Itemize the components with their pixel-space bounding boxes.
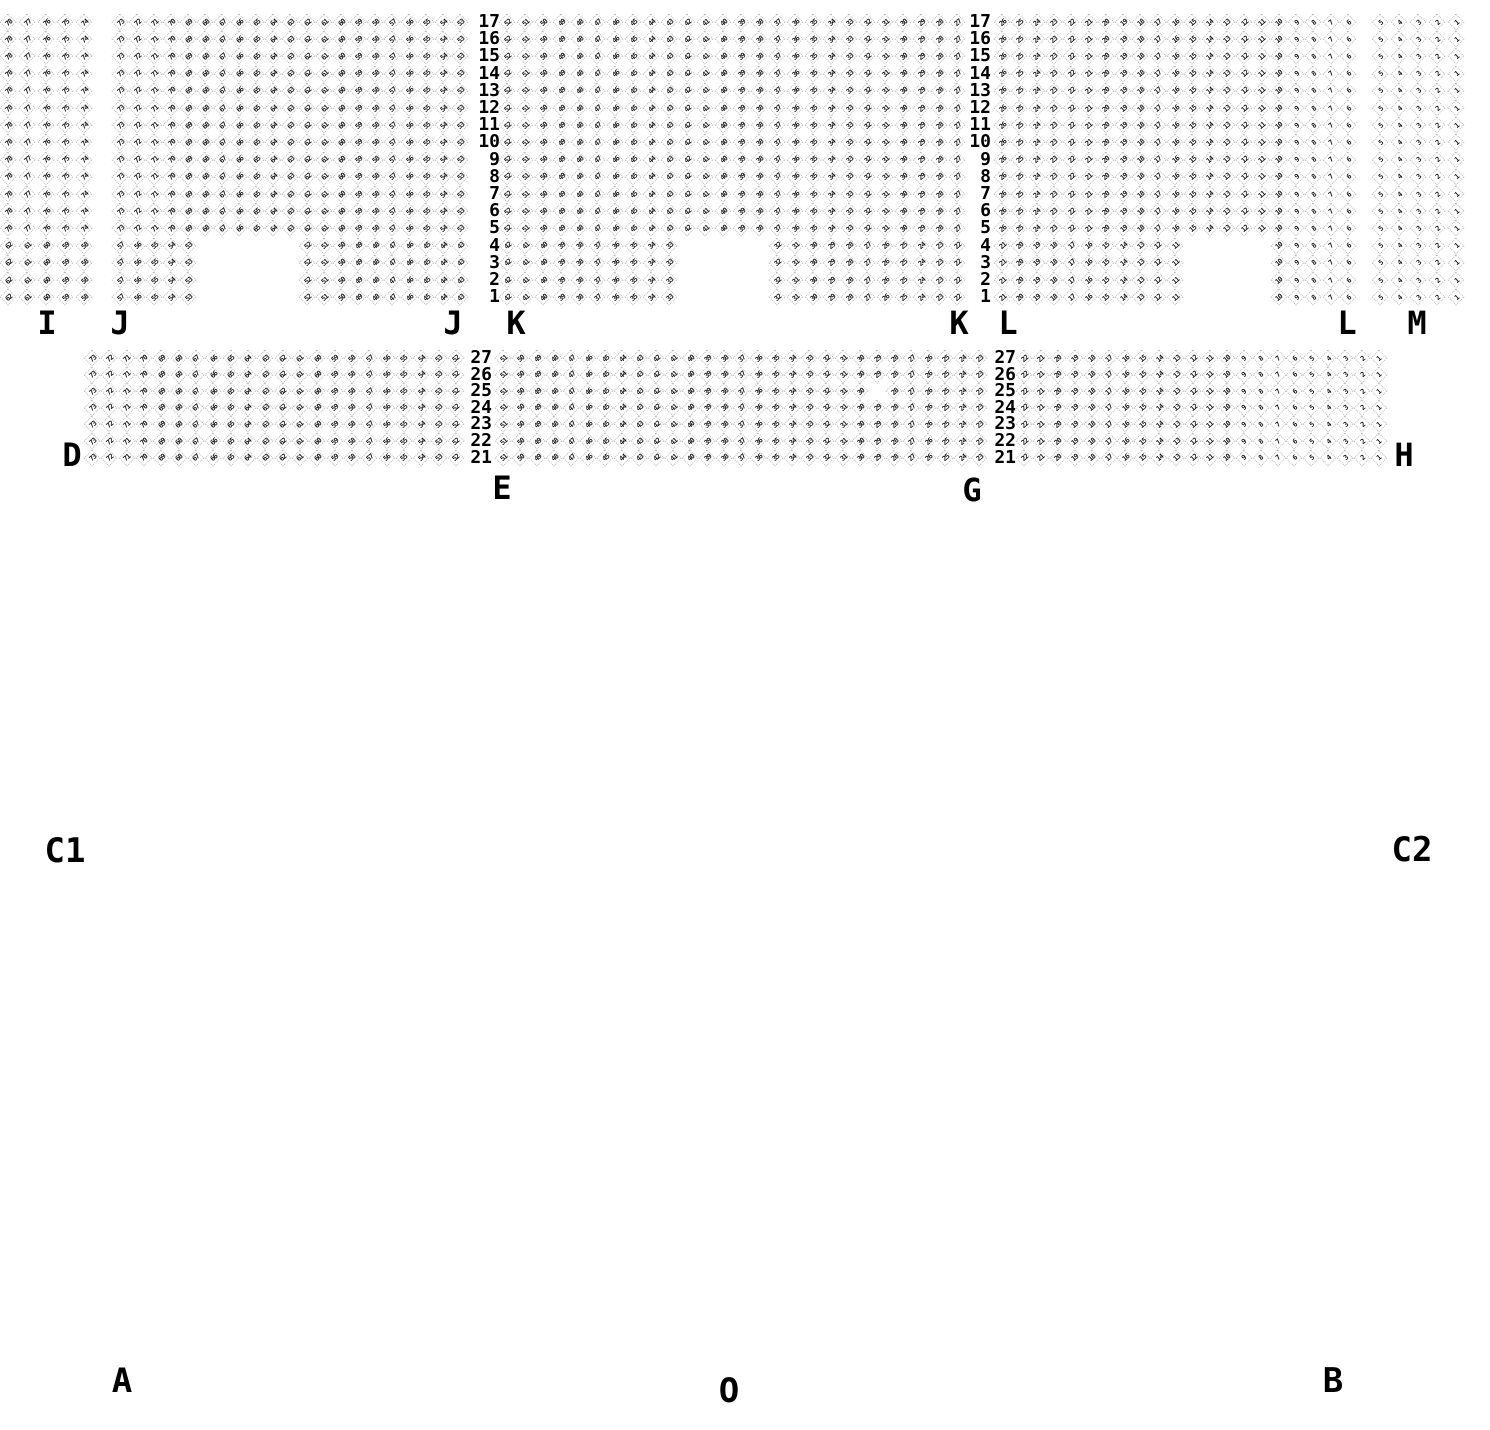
seat[interactable]: 8	[1253, 450, 1268, 465]
seat[interactable]: 36	[751, 351, 766, 366]
seat[interactable]: 6	[1287, 450, 1302, 465]
seat[interactable]: 31	[836, 351, 851, 366]
seat[interactable]: 9	[1289, 83, 1304, 98]
seat[interactable]: 51	[518, 204, 533, 219]
seat[interactable]: 18	[1046, 255, 1061, 270]
seat[interactable]: 41	[666, 417, 681, 432]
seat[interactable]: 9	[1289, 15, 1304, 30]
seat[interactable]: 16	[1118, 417, 1133, 432]
seat[interactable]: 66	[232, 204, 247, 219]
seat[interactable]: 47	[564, 450, 579, 465]
seat[interactable]: 2	[1355, 417, 1370, 432]
seat[interactable]: 61	[20, 273, 35, 288]
seat[interactable]: 15	[1098, 290, 1113, 305]
seat[interactable]: 42	[680, 187, 695, 202]
seat[interactable]: 45	[419, 238, 434, 253]
seat[interactable]: 70	[164, 101, 179, 116]
seat[interactable]: 10	[1219, 450, 1234, 465]
seat[interactable]: 11	[1202, 450, 1217, 465]
seat[interactable]: 48	[572, 101, 587, 116]
seat[interactable]: 36	[608, 255, 623, 270]
seat[interactable]: 78	[1, 169, 16, 184]
seat[interactable]: 13	[1219, 221, 1234, 236]
seat[interactable]: 9	[1289, 273, 1304, 288]
seat[interactable]: 32	[860, 32, 875, 47]
seat[interactable]: 61	[317, 221, 332, 236]
seat[interactable]: 36	[788, 15, 803, 30]
seat[interactable]: 9	[1289, 152, 1304, 167]
seat[interactable]: 67	[215, 49, 230, 64]
seat[interactable]: 44	[644, 15, 659, 30]
seat[interactable]: 72	[130, 152, 145, 167]
seat[interactable]: 6	[1341, 32, 1356, 47]
seat[interactable]: 12	[1186, 450, 1201, 465]
seat[interactable]: 52	[500, 101, 515, 116]
seat[interactable]: 46	[581, 367, 596, 382]
seat[interactable]: 5	[1373, 83, 1388, 98]
seat[interactable]: 18	[1133, 66, 1148, 81]
seat[interactable]: 25	[938, 417, 953, 432]
seat[interactable]: 46	[581, 450, 596, 465]
seat[interactable]: 34	[785, 434, 800, 449]
seat[interactable]: 32	[860, 101, 875, 116]
seat[interactable]: 49	[554, 66, 569, 81]
seat[interactable]: 45	[598, 400, 613, 415]
seat[interactable]: 29	[914, 83, 929, 98]
seat[interactable]: 62	[1, 290, 16, 305]
seat[interactable]: 23	[932, 290, 947, 305]
seat[interactable]: 12	[1237, 101, 1252, 116]
seat[interactable]: 31	[878, 49, 893, 64]
seat[interactable]: 2	[1430, 101, 1445, 116]
seat[interactable]: 32	[860, 15, 875, 30]
seat[interactable]: 43	[632, 434, 647, 449]
seat[interactable]: 42	[680, 221, 695, 236]
seat[interactable]: 76	[39, 83, 54, 98]
seat[interactable]: 72	[130, 118, 145, 133]
seat[interactable]: 46	[608, 221, 623, 236]
seat[interactable]: 3	[1411, 204, 1426, 219]
seat[interactable]: 53	[453, 49, 468, 64]
seat[interactable]: 34	[785, 351, 800, 366]
seat[interactable]: 77	[20, 83, 35, 98]
seat[interactable]: 10	[1271, 290, 1286, 305]
seat[interactable]: 53	[453, 15, 468, 30]
seat[interactable]: 29	[870, 367, 885, 382]
seat[interactable]: 42	[680, 32, 695, 47]
seat[interactable]: 12	[1237, 187, 1252, 202]
seat[interactable]: 72	[130, 66, 145, 81]
seat[interactable]: 31	[836, 450, 851, 465]
seat[interactable]: 52	[300, 273, 315, 288]
seat[interactable]: 27	[904, 351, 919, 366]
seat[interactable]: 72	[130, 32, 145, 47]
seat[interactable]: 18	[1046, 290, 1061, 305]
seat[interactable]: 27	[950, 118, 965, 133]
seat[interactable]: 54	[436, 118, 451, 133]
seat[interactable]: 75	[58, 83, 73, 98]
seat[interactable]: 26	[995, 169, 1010, 184]
seat[interactable]: 24	[1029, 135, 1044, 150]
seat[interactable]: 43	[453, 290, 468, 305]
seat[interactable]: 45	[626, 118, 641, 133]
seat[interactable]: 65	[249, 221, 264, 236]
seat[interactable]: 36	[788, 135, 803, 150]
seat[interactable]: 15	[1185, 221, 1200, 236]
seat[interactable]: 40	[716, 187, 731, 202]
seat[interactable]: 72	[130, 49, 145, 64]
seat[interactable]: 71	[119, 417, 134, 432]
seat[interactable]: 5	[1304, 450, 1319, 465]
seat[interactable]: 30	[853, 351, 868, 366]
seat[interactable]: 22	[950, 255, 965, 270]
seat[interactable]: 63	[283, 32, 298, 47]
seat[interactable]: 8	[1306, 83, 1321, 98]
seat[interactable]: 22	[1064, 66, 1079, 81]
seat[interactable]: 25	[1012, 15, 1027, 30]
seat[interactable]: 51	[518, 49, 533, 64]
seat[interactable]: 55	[419, 118, 434, 133]
seat[interactable]: 26	[995, 135, 1010, 150]
seat[interactable]: 68	[198, 49, 213, 64]
seat[interactable]: 52	[448, 450, 463, 465]
seat[interactable]: 21	[1081, 101, 1096, 116]
seat[interactable]: 58	[77, 238, 92, 253]
seat[interactable]: 67	[215, 152, 230, 167]
seat[interactable]: 39	[700, 400, 715, 415]
seat[interactable]: 58	[368, 49, 383, 64]
seat[interactable]: 77	[20, 204, 35, 219]
seat[interactable]: 15	[1098, 273, 1113, 288]
seat[interactable]: 44	[436, 255, 451, 270]
seat[interactable]: 52	[500, 49, 515, 64]
seat[interactable]: 13	[1219, 101, 1234, 116]
seat[interactable]: 13	[1169, 400, 1184, 415]
seat[interactable]: 34	[824, 101, 839, 116]
seat[interactable]: 60	[334, 101, 349, 116]
seat[interactable]: 57	[385, 15, 400, 30]
seat[interactable]: 2	[1430, 290, 1445, 305]
seat[interactable]: 32	[860, 118, 875, 133]
seat[interactable]: 7	[1323, 101, 1338, 116]
seat[interactable]: 68	[198, 221, 213, 236]
seat[interactable]: 48	[368, 290, 383, 305]
seat[interactable]: 5	[1373, 204, 1388, 219]
seat[interactable]: 49	[530, 367, 545, 382]
seat[interactable]: 17	[1150, 221, 1165, 236]
seat[interactable]: 29	[914, 15, 929, 30]
seat[interactable]: 48	[572, 49, 587, 64]
seat[interactable]: 59	[351, 49, 366, 64]
seat[interactable]: 25	[896, 255, 911, 270]
seat[interactable]: 43	[662, 83, 677, 98]
seat[interactable]: 77	[20, 101, 35, 116]
seat[interactable]: 60	[334, 118, 349, 133]
seat[interactable]: 73	[113, 169, 128, 184]
seat[interactable]: 73	[113, 83, 128, 98]
seat[interactable]: 63	[283, 118, 298, 133]
seat[interactable]: 3	[1411, 187, 1426, 202]
seat[interactable]: 70	[164, 49, 179, 64]
seat[interactable]: 29	[824, 290, 839, 305]
seat[interactable]: 66	[232, 15, 247, 30]
seat[interactable]: 31	[788, 273, 803, 288]
seat[interactable]: 22	[1017, 351, 1032, 366]
seat[interactable]: 41	[666, 351, 681, 366]
seat[interactable]: 52	[500, 187, 515, 202]
seat[interactable]: 18	[1133, 49, 1148, 64]
seat[interactable]: 34	[785, 417, 800, 432]
seat[interactable]: 41	[698, 204, 713, 219]
seat[interactable]: 58	[368, 15, 383, 30]
seat[interactable]: 21	[1081, 15, 1096, 30]
seat[interactable]: 6	[1287, 417, 1302, 432]
seat[interactable]: 66	[206, 417, 221, 432]
seat[interactable]: 6	[1341, 204, 1356, 219]
seat[interactable]: 11	[1254, 118, 1269, 133]
seat[interactable]: 6	[1341, 221, 1356, 236]
seat[interactable]: 8	[1306, 32, 1321, 47]
seat[interactable]: 50	[536, 152, 551, 167]
seat[interactable]: 24	[955, 367, 970, 382]
seat[interactable]: 38	[752, 32, 767, 47]
seat[interactable]: 15	[1185, 187, 1200, 202]
seat[interactable]: 59	[351, 135, 366, 150]
seat[interactable]: 62	[300, 66, 315, 81]
seat[interactable]: 6	[1341, 49, 1356, 64]
seat[interactable]: 20	[1098, 118, 1113, 133]
seat[interactable]: 58	[368, 187, 383, 202]
seat[interactable]: 3	[1338, 450, 1353, 465]
seat[interactable]: 12	[1237, 66, 1252, 81]
seat[interactable]: 54	[414, 367, 429, 382]
seat[interactable]: 12	[1186, 367, 1201, 382]
seat[interactable]: 71	[147, 32, 162, 47]
seat[interactable]: 71	[147, 118, 162, 133]
seat[interactable]: 66	[206, 450, 221, 465]
seat[interactable]: 35	[626, 273, 641, 288]
seat[interactable]: 26	[995, 32, 1010, 47]
seat[interactable]: 53	[453, 169, 468, 184]
seat[interactable]: 36	[788, 118, 803, 133]
seat[interactable]: 19	[1116, 83, 1131, 98]
seat[interactable]: 9	[1289, 221, 1304, 236]
seat[interactable]: 37	[734, 450, 749, 465]
seat[interactable]: 28	[932, 83, 947, 98]
seat[interactable]: 54	[436, 152, 451, 167]
seat[interactable]: 15	[1185, 66, 1200, 81]
seat[interactable]: 19	[1116, 221, 1131, 236]
seat[interactable]: 50	[334, 238, 349, 253]
seat[interactable]: 45	[626, 135, 641, 150]
seat[interactable]: 59	[351, 66, 366, 81]
seat[interactable]: 26	[995, 152, 1010, 167]
seat[interactable]: 52	[500, 118, 515, 133]
seat[interactable]: 57	[385, 32, 400, 47]
seat[interactable]: 26	[921, 351, 936, 366]
seat[interactable]: 4	[1321, 417, 1336, 432]
seat[interactable]: 26	[995, 204, 1010, 219]
seat[interactable]: 69	[181, 66, 196, 81]
seat[interactable]: 12	[1186, 434, 1201, 449]
seat[interactable]: 54	[436, 135, 451, 150]
seat[interactable]: 8	[1306, 152, 1321, 167]
seat[interactable]: 16	[1118, 450, 1133, 465]
seat[interactable]: 49	[554, 204, 569, 219]
seat[interactable]: 41	[518, 238, 533, 253]
seat[interactable]: 3	[1411, 32, 1426, 47]
seat[interactable]: 20	[1098, 169, 1113, 184]
seat[interactable]: 70	[164, 169, 179, 184]
seat[interactable]: 22	[1064, 118, 1079, 133]
seat[interactable]: 66	[232, 66, 247, 81]
seat[interactable]: 2	[1430, 204, 1445, 219]
seat[interactable]: 8	[1306, 273, 1321, 288]
seat[interactable]: 33	[842, 204, 857, 219]
seat[interactable]: 24	[1029, 83, 1044, 98]
seat[interactable]: 32	[819, 417, 834, 432]
seat[interactable]: 17	[1150, 32, 1165, 47]
seat[interactable]: 62	[1, 273, 16, 288]
seat[interactable]: 43	[662, 66, 677, 81]
seat[interactable]: 74	[77, 221, 92, 236]
seat[interactable]: 30	[896, 204, 911, 219]
seat[interactable]: 42	[680, 118, 695, 133]
seat[interactable]: 16	[1081, 255, 1096, 270]
seat[interactable]: 41	[698, 49, 713, 64]
seat[interactable]: 25	[1012, 221, 1027, 236]
seat[interactable]: 17	[1150, 49, 1165, 64]
seat[interactable]: 31	[788, 290, 803, 305]
seat[interactable]: 27	[904, 367, 919, 382]
seat[interactable]: 64	[266, 135, 281, 150]
seat[interactable]: 44	[615, 434, 630, 449]
seat[interactable]: 21	[995, 290, 1010, 305]
seat[interactable]: 35	[806, 118, 821, 133]
seat[interactable]: 39	[734, 118, 749, 133]
seat[interactable]: 30	[896, 83, 911, 98]
seat[interactable]: 38	[572, 255, 587, 270]
seat[interactable]: 61	[317, 101, 332, 116]
seat[interactable]: 14	[1116, 273, 1131, 288]
seat[interactable]: 19	[1116, 169, 1131, 184]
seat[interactable]: 50	[334, 273, 349, 288]
seat[interactable]: 16	[1168, 169, 1183, 184]
seat[interactable]: 28	[887, 400, 902, 415]
seat[interactable]: 37	[590, 273, 605, 288]
seat[interactable]: 40	[716, 221, 731, 236]
seat[interactable]: 46	[608, 135, 623, 150]
seat[interactable]: 24	[1029, 15, 1044, 30]
seat[interactable]: 13	[1219, 83, 1234, 98]
seat[interactable]: 36	[788, 66, 803, 81]
seat[interactable]: 56	[130, 273, 145, 288]
seat[interactable]: 15	[1135, 417, 1150, 432]
seat[interactable]: 34	[785, 450, 800, 465]
seat[interactable]: 78	[1, 187, 16, 202]
seat[interactable]: 45	[626, 169, 641, 184]
seat[interactable]: 21	[995, 273, 1010, 288]
seat[interactable]: 7	[1323, 49, 1338, 64]
seat[interactable]: 27	[950, 49, 965, 64]
seat[interactable]: 53	[453, 118, 468, 133]
seat[interactable]: 37	[770, 169, 785, 184]
seat[interactable]: 50	[513, 367, 528, 382]
seat[interactable]: 4	[1392, 66, 1407, 81]
seat[interactable]: 52	[300, 290, 315, 305]
seat[interactable]: 47	[590, 118, 605, 133]
seat[interactable]: 54	[436, 204, 451, 219]
seat[interactable]: 75	[58, 49, 73, 64]
seat[interactable]: 18	[1133, 169, 1148, 184]
seat[interactable]: 58	[368, 135, 383, 150]
seat[interactable]: 6	[1341, 66, 1356, 81]
seat[interactable]: 44	[436, 290, 451, 305]
seat[interactable]: 30	[896, 15, 911, 30]
seat[interactable]: 50	[536, 101, 551, 116]
seat[interactable]: 58	[77, 273, 92, 288]
seat[interactable]: 62	[300, 187, 315, 202]
seat[interactable]: 78	[1, 66, 16, 81]
seat[interactable]: 25	[896, 290, 911, 305]
seat[interactable]: 53	[453, 83, 468, 98]
seat[interactable]: 55	[419, 49, 434, 64]
seat[interactable]: 28	[932, 101, 947, 116]
seat[interactable]: 7	[1323, 169, 1338, 184]
seat[interactable]: 7	[1323, 15, 1338, 30]
seat[interactable]: 9	[1289, 169, 1304, 184]
seat[interactable]: 5	[1373, 32, 1388, 47]
seat[interactable]: 55	[419, 204, 434, 219]
seat[interactable]: 6	[1287, 367, 1302, 382]
seat[interactable]: 11	[1254, 187, 1269, 202]
seat[interactable]: 35	[806, 221, 821, 236]
seat[interactable]: 43	[662, 32, 677, 47]
seat[interactable]: 6	[1341, 169, 1356, 184]
seat[interactable]: 8	[1306, 204, 1321, 219]
seat[interactable]: 4	[1392, 152, 1407, 167]
seat[interactable]: 5	[1373, 49, 1388, 64]
seat[interactable]: 40	[536, 255, 551, 270]
seat[interactable]: 64	[240, 450, 255, 465]
seat[interactable]: 74	[77, 101, 92, 116]
seat[interactable]: 44	[644, 152, 659, 167]
seat[interactable]: 27	[860, 238, 875, 253]
seat[interactable]: 40	[683, 434, 698, 449]
seat[interactable]: 18	[1133, 15, 1148, 30]
seat[interactable]: 19	[1116, 135, 1131, 150]
seat[interactable]: 34	[824, 66, 839, 81]
seat[interactable]: 6	[1341, 15, 1356, 30]
seat[interactable]: 64	[266, 221, 281, 236]
seat[interactable]: 16	[1168, 83, 1183, 98]
seat[interactable]: 32	[860, 169, 875, 184]
seat[interactable]: 47	[590, 66, 605, 81]
seat[interactable]: 61	[20, 290, 35, 305]
seat[interactable]: 59	[58, 273, 73, 288]
seat[interactable]: 50	[536, 118, 551, 133]
seat[interactable]: 32	[860, 221, 875, 236]
seat[interactable]: 42	[680, 204, 695, 219]
seat[interactable]: 1	[1449, 273, 1464, 288]
seat[interactable]: 53	[453, 187, 468, 202]
seat[interactable]: 25	[896, 238, 911, 253]
seat[interactable]: 56	[130, 255, 145, 270]
seat[interactable]: 53	[453, 32, 468, 47]
seat[interactable]: 40	[716, 169, 731, 184]
seat[interactable]: 17	[1150, 204, 1165, 219]
seat[interactable]: 30	[896, 118, 911, 133]
